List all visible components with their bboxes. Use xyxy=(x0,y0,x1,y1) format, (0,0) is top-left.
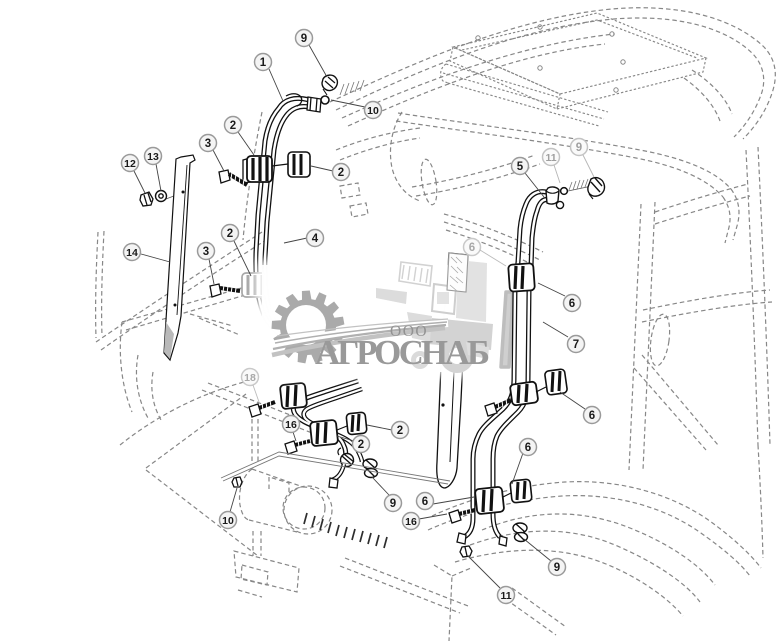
svg-text:6: 6 xyxy=(569,298,575,310)
svg-text:12: 12 xyxy=(124,158,136,170)
svg-text:6: 6 xyxy=(525,442,531,454)
svg-text:АГРОСНАБ: АГРОСНАБ xyxy=(315,333,490,372)
svg-text:1: 1 xyxy=(260,57,267,69)
svg-text:5: 5 xyxy=(517,161,524,173)
svg-text:10: 10 xyxy=(222,515,234,527)
svg-text:2: 2 xyxy=(358,439,364,451)
svg-text:14: 14 xyxy=(126,247,138,259)
svg-text:3: 3 xyxy=(205,138,211,150)
svg-text:11: 11 xyxy=(500,590,511,602)
svg-text:2: 2 xyxy=(397,425,403,437)
svg-text:2: 2 xyxy=(338,167,344,179)
svg-text:10: 10 xyxy=(367,105,379,117)
svg-text:4: 4 xyxy=(312,233,319,245)
svg-text:6: 6 xyxy=(589,410,595,422)
svg-text:6: 6 xyxy=(469,242,475,254)
svg-text:2: 2 xyxy=(230,120,236,132)
svg-text:18: 18 xyxy=(244,372,256,384)
svg-text:11: 11 xyxy=(545,152,556,164)
svg-text:2: 2 xyxy=(227,228,233,240)
svg-text:16: 16 xyxy=(285,419,297,431)
svg-text:13: 13 xyxy=(147,151,159,163)
svg-text:9: 9 xyxy=(390,498,396,510)
svg-text:7: 7 xyxy=(573,339,579,351)
svg-text:6: 6 xyxy=(422,496,428,508)
svg-text:16: 16 xyxy=(405,516,417,528)
svg-text:9: 9 xyxy=(554,562,560,574)
svg-text:9: 9 xyxy=(301,33,307,45)
svg-text:3: 3 xyxy=(203,246,209,258)
svg-text:9: 9 xyxy=(576,142,582,154)
